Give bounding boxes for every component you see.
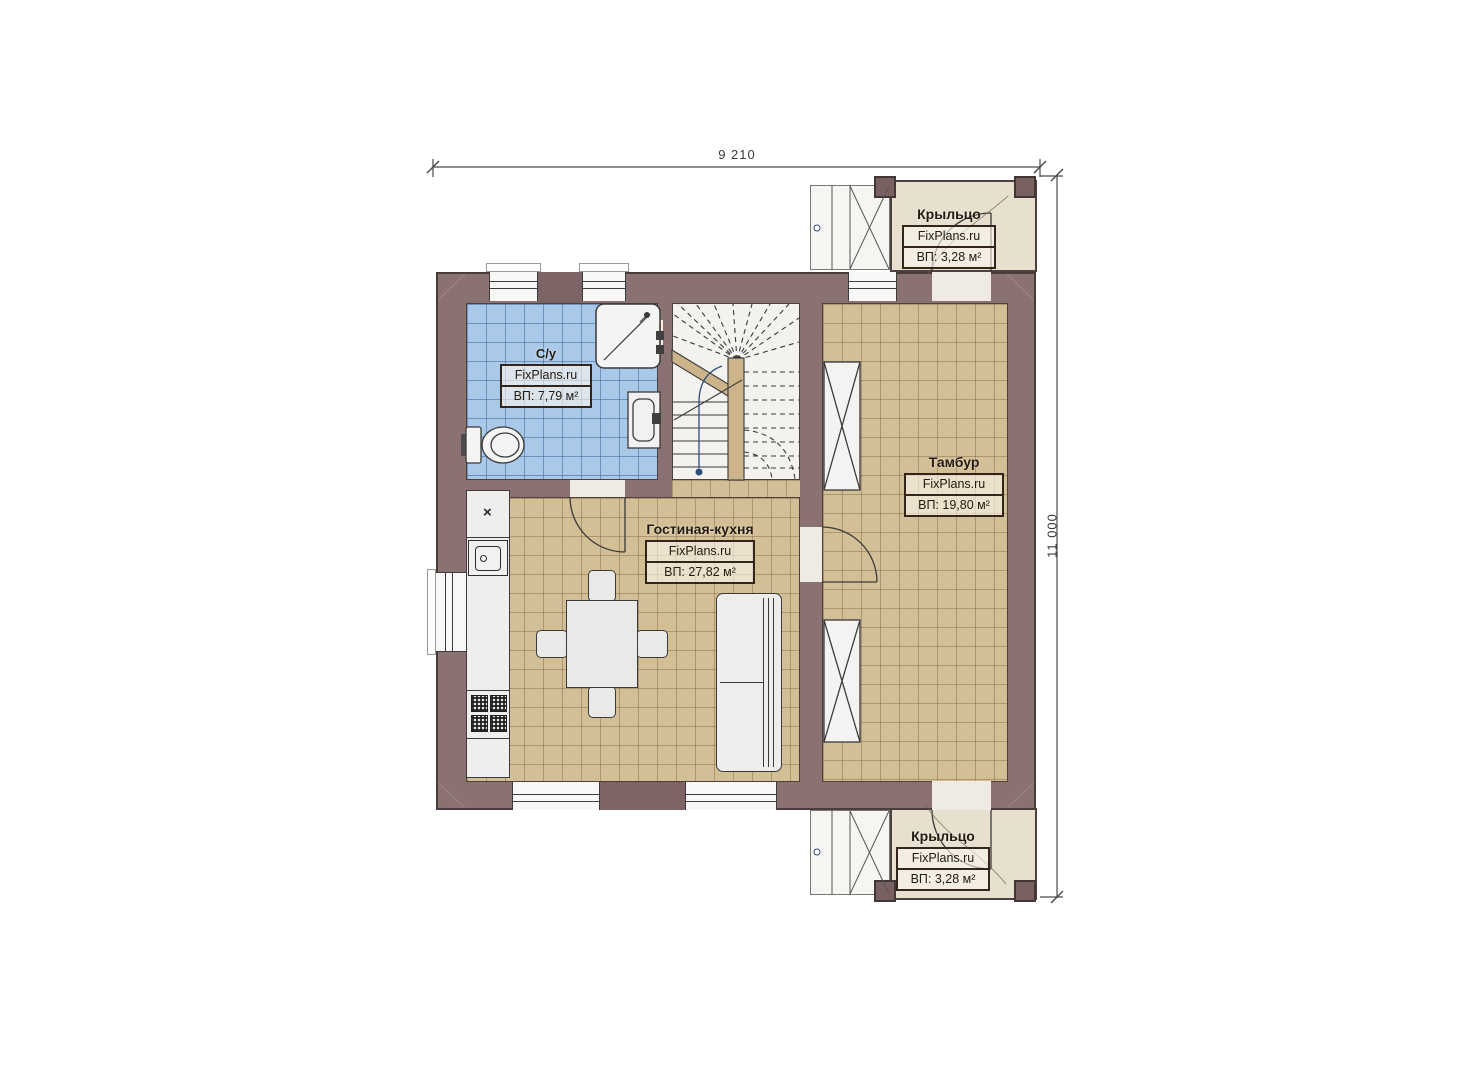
room-name: Тамбур [898,454,1010,470]
room-label-tambour: Тамбур FixPlans.ru ВП: 19,80 м² [898,454,1010,517]
kitchen-cabinet-cell: × [466,490,510,538]
living-floor-patch [672,480,800,497]
room-area: ВП: 3,28 м² [898,868,988,889]
dining-chair-right [636,630,668,658]
sofa-back-line [768,598,769,767]
room-area: ВП: 7,79 м² [502,385,590,406]
brand-watermark: FixPlans.ru [906,475,1002,494]
room-label-porch-top: Крыльцо FixPlans.ru ВП: 3,28 м² [894,206,1004,269]
room-info-box: FixPlans.ru ВП: 27,82 м² [645,540,755,584]
porch-bottom-post-right [1014,880,1036,902]
kitchen-sink [468,540,508,576]
dining-chair-bottom [588,686,616,718]
room-info-box: FixPlans.ru ВП: 7,79 м² [500,364,592,408]
porch-top-post-left [874,176,896,198]
room-info-box: FixPlans.ru ВП: 19,80 м² [904,473,1004,517]
sofa-back-line [773,598,774,767]
floor-plan: × [0,0,1473,1080]
entry-door-opening-top [932,272,991,301]
stove-burner [490,695,507,712]
dining-chair-left [536,630,568,658]
room-area: ВП: 3,28 м² [904,246,994,267]
room-name: Гостиная-кухня [628,521,772,537]
window-sill-left [427,569,436,655]
dimension-height-label: 11 000 [1045,504,1060,568]
kitchen-stove [466,690,510,739]
radiator-icon [650,320,663,333]
window-top-2 [582,272,626,301]
window-bottom-2 [685,782,777,810]
wall-pier-top [538,272,582,303]
cabinet-x-mark: × [483,504,492,521]
bathroom-door-opening [570,480,625,497]
window-bottom-1 [512,782,600,810]
dining-chair-top [588,570,616,602]
sofa [716,593,782,772]
room-info-box: FixPlans.ru ВП: 3,28 м² [896,847,990,891]
room-label-bathroom: С/у FixPlans.ru ВП: 7,79 м² [490,346,602,408]
window-sill-top-2 [579,263,629,272]
sink-drain [480,555,487,562]
window-left [436,572,466,652]
brand-watermark: FixPlans.ru [647,542,753,561]
window-frame [583,281,625,289]
window-frame [849,281,896,289]
stove-burner [471,695,488,712]
window-top-1 [489,272,538,301]
sink-basin [475,546,501,571]
room-name: С/у [490,346,602,361]
window-frame [490,281,537,289]
wall-pier-bottom [600,782,685,810]
room-area: ВП: 19,80 м² [906,494,1002,515]
brand-watermark: FixPlans.ru [502,366,590,385]
window-sill-top-1 [486,263,541,272]
room-name: Крыльцо [894,206,1004,222]
radiator-icon [650,335,663,348]
dining-table [566,600,638,688]
sofa-seat-divider [720,682,764,683]
window-frame [445,573,453,651]
tambour-door-opening [800,527,822,582]
brand-watermark: FixPlans.ru [898,849,988,868]
room-info-box: FixPlans.ru ВП: 3,28 м² [902,225,996,269]
window-tambour-top [848,272,897,301]
room-area: ВП: 27,82 м² [647,561,753,582]
room-label-porch-bottom: Крыльцо FixPlans.ru ВП: 3,28 м² [888,828,998,891]
tambour-floor [822,303,1008,782]
dimension-width-label: 9 210 [706,147,768,162]
room-label-living: Гостиная-кухня FixPlans.ru ВП: 27,82 м² [628,521,772,584]
brand-watermark: FixPlans.ru [904,227,994,246]
room-name: Крыльцо [888,828,998,844]
porch-top-post-right [1014,176,1036,198]
staircase-floor [672,303,800,480]
window-frame [513,794,599,802]
window-frame [686,794,776,802]
stove-burner [490,715,507,732]
entry-door-opening-bottom [932,781,991,810]
stove-burner [471,715,488,732]
